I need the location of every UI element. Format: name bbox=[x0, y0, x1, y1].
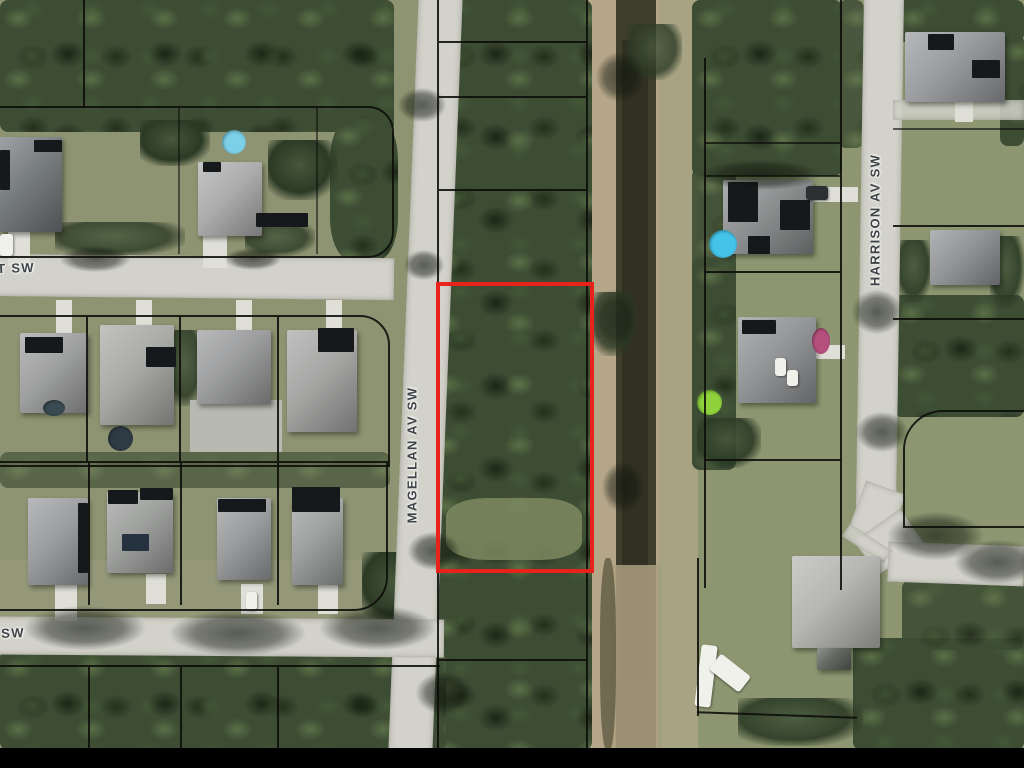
parcel-line bbox=[697, 558, 699, 716]
trees-below-curve bbox=[902, 580, 1024, 650]
tree-shadow bbox=[594, 290, 636, 348]
street-label-magellan-av-sw: MAGELLAN AV SW bbox=[405, 387, 420, 524]
trees-bottom-right bbox=[853, 638, 1024, 750]
tree-shadow bbox=[416, 672, 472, 714]
parcel-line bbox=[277, 667, 279, 748]
flowering-tree bbox=[812, 328, 830, 354]
canal-path-south bbox=[600, 558, 616, 750]
tree-shadow bbox=[856, 412, 908, 452]
parcel-line bbox=[180, 667, 182, 748]
parcel-line bbox=[439, 41, 586, 43]
parcel-line bbox=[316, 108, 318, 254]
parcel-line bbox=[88, 463, 90, 605]
parcel-block bbox=[0, 315, 390, 467]
highlighted-parcel-outline bbox=[436, 282, 594, 573]
tree-shadow bbox=[955, 540, 1024, 584]
tree-blob bbox=[738, 698, 863, 746]
tree-shadow bbox=[320, 606, 435, 650]
parcel-block bbox=[0, 461, 388, 611]
parcel-line bbox=[439, 189, 586, 191]
letterbox-bottom bbox=[0, 748, 1024, 768]
parcel-block bbox=[0, 106, 394, 258]
tree-shadow bbox=[25, 606, 145, 650]
green-pool bbox=[697, 390, 722, 415]
parcel-line bbox=[705, 459, 841, 461]
parcel-line bbox=[893, 128, 1024, 130]
street-label-t-sw: T SW bbox=[0, 260, 35, 276]
parcel-line bbox=[840, 0, 842, 590]
canal-dry-south bbox=[610, 565, 662, 750]
parcel-line bbox=[439, 96, 586, 98]
driveway bbox=[955, 100, 973, 122]
roof-dark-section bbox=[742, 320, 776, 334]
blue-pool bbox=[709, 230, 737, 258]
shed bbox=[817, 648, 851, 670]
parcel-block bbox=[903, 410, 1024, 528]
parcel-line bbox=[277, 317, 279, 461]
parcel-line bbox=[893, 225, 1024, 227]
parcel-line bbox=[705, 142, 841, 144]
tree-shadow bbox=[596, 52, 644, 102]
car bbox=[775, 358, 786, 376]
parcel-line bbox=[180, 463, 182, 605]
parcel-line bbox=[439, 659, 586, 661]
parcel-line bbox=[178, 108, 180, 254]
tree-shadow bbox=[170, 610, 305, 656]
aerial-parcel-map: MAGELLAN AV SWHARRISON AV SWT SWSW bbox=[0, 0, 1024, 768]
roof-dark-section bbox=[748, 236, 770, 254]
parcel-line bbox=[0, 665, 440, 667]
car bbox=[787, 370, 798, 386]
house bbox=[930, 230, 1000, 285]
parcel-line bbox=[83, 0, 85, 108]
parcel-line bbox=[88, 667, 90, 748]
parcel-line bbox=[179, 317, 181, 461]
roof-dark-section bbox=[972, 60, 1000, 78]
roof-dark-section bbox=[780, 200, 810, 230]
parcel-line bbox=[705, 175, 841, 177]
parcel-line bbox=[893, 318, 1024, 320]
tree-shadow bbox=[602, 462, 644, 512]
trees-right-upper bbox=[692, 0, 842, 176]
roof-dark-section bbox=[928, 34, 954, 50]
house bbox=[792, 556, 880, 648]
street-label-sw: SW bbox=[1, 625, 25, 641]
parcel-line bbox=[704, 58, 706, 588]
parcel-line bbox=[277, 463, 279, 605]
tree-shadow bbox=[852, 290, 902, 334]
street-label-harrison-av-sw: HARRISON AV SW bbox=[868, 154, 883, 286]
trees-right-mid-block bbox=[893, 295, 1024, 417]
tree-blob bbox=[898, 240, 932, 302]
parcel-line bbox=[705, 271, 841, 273]
parcel-line bbox=[86, 317, 88, 461]
